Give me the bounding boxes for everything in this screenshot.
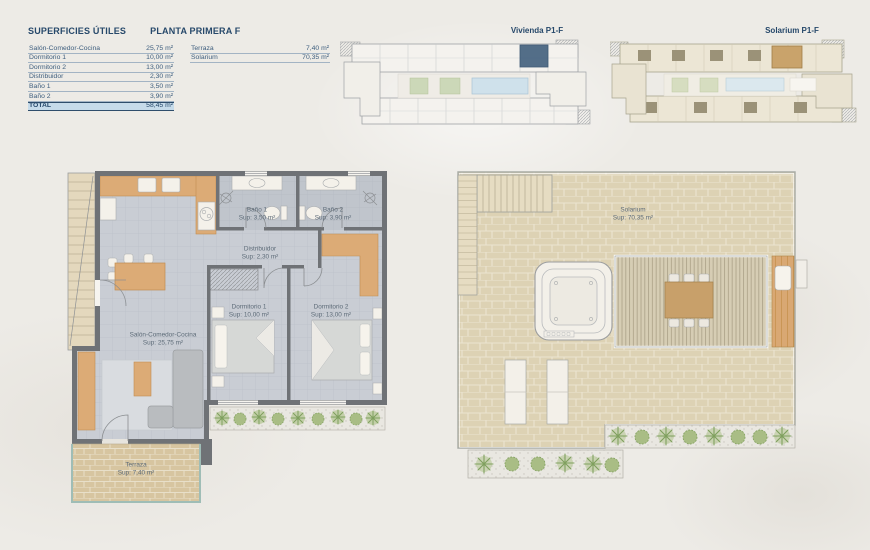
pool — [472, 78, 528, 94]
pool — [726, 78, 784, 91]
deck-pad — [790, 78, 816, 91]
building-bottom-bar — [630, 96, 842, 122]
vanity — [232, 176, 282, 190]
wood-deck — [772, 256, 794, 347]
roof-block — [638, 50, 651, 61]
wardrobe-dormitorio1 — [210, 269, 258, 290]
row-label: Dormitorio 1 — [29, 54, 66, 61]
roof-block — [694, 102, 707, 113]
row-value: 10,00 m² — [146, 54, 173, 61]
garden-patch — [700, 78, 718, 92]
table-row: Baño 1 3,50 m² — [28, 82, 174, 92]
planter-right — [605, 425, 795, 448]
row-label: Salón-Comedor-Cocina — [29, 45, 100, 52]
total-value: 58,45 m² — [146, 102, 173, 109]
shower-tray — [775, 266, 791, 290]
nightstand — [212, 307, 224, 318]
chair — [669, 274, 679, 282]
row-label: Distribuidor — [29, 73, 63, 80]
coffee-table — [134, 362, 151, 396]
pillow — [360, 324, 370, 347]
row-label: Dormitorio 2 — [29, 64, 66, 71]
sofa — [173, 350, 203, 428]
fridge — [100, 198, 116, 220]
nightstand — [212, 376, 224, 387]
header: SUPERFICIES ÚTILES PLANTA PRIMERA F — [28, 26, 241, 36]
table-row-total: TOTAL 58,45 m² — [28, 102, 174, 112]
chair — [684, 274, 694, 282]
chair — [684, 319, 694, 327]
garden-patch — [410, 78, 428, 94]
table-row: Baño 2 3,90 m² — [28, 92, 174, 102]
keyplan-solarium-label: Solarium P1-F — [732, 26, 852, 35]
chair — [699, 319, 709, 327]
vivienda-floor-plan — [60, 168, 445, 513]
keyplan-solarium-site-plan — [610, 36, 862, 128]
chair — [699, 274, 709, 282]
page-subtitle: PLANTA PRIMERA F — [150, 26, 240, 36]
ac-unit — [796, 260, 807, 288]
row-label: Baño 2 — [29, 93, 51, 100]
pillow — [215, 325, 227, 368]
row-value: 2,30 m² — [150, 73, 173, 80]
row-value: 70,35 m² — [302, 54, 329, 61]
outdoor-dining-table — [665, 274, 713, 327]
terrace — [72, 444, 200, 502]
building-left-wing — [612, 64, 646, 114]
row-value: 3,90 m² — [150, 93, 173, 100]
nightstand — [373, 383, 382, 394]
building-left-wing — [344, 62, 380, 116]
table-row: Solarium 70,35 m² — [190, 54, 330, 64]
row-label: Terraza — [191, 45, 214, 52]
highlighted-unit-vivienda — [520, 45, 548, 67]
table-row: Distribuidor 2,30 m² — [28, 73, 174, 83]
row-value: 13,00 m² — [146, 64, 173, 71]
keyplan-vivienda-label: Vivienda P1-F — [477, 26, 597, 35]
planter-strip — [210, 407, 385, 430]
jacuzzi — [535, 262, 612, 340]
toilet — [299, 206, 322, 220]
highlighted-unit-solarium — [772, 46, 802, 68]
row-value: 25,75 m² — [146, 45, 173, 52]
solarium-floor-plan — [450, 168, 810, 488]
vanity — [306, 176, 356, 190]
building-bottom-bar — [362, 98, 578, 124]
exterior-surfaces-table: Terraza 7,40 m² Solarium 70,35 m² — [190, 44, 330, 63]
building-top-bar — [620, 44, 842, 72]
table-row: Salón-Comedor-Cocina 25,75 m² — [28, 44, 174, 54]
tv-cabinet — [78, 352, 95, 430]
table-row: Dormitorio 1 10,00 m² — [28, 54, 174, 64]
total-label: TOTAL — [29, 102, 51, 109]
courtyard — [664, 74, 816, 96]
keyplan-vivienda-site-plan — [340, 36, 602, 128]
roof-block — [710, 50, 723, 61]
chair — [144, 254, 153, 263]
roof-block — [748, 50, 761, 61]
kitchen-sink — [138, 178, 156, 192]
roof-block — [794, 102, 807, 113]
row-label: Solarium — [191, 54, 218, 61]
chair — [669, 319, 679, 327]
surfaces-table: Salón-Comedor-Cocina 25,75 m² Dormitorio… — [28, 44, 174, 111]
page-title: SUPERFICIES ÚTILES — [28, 26, 126, 36]
row-value: 3,50 m² — [150, 83, 173, 90]
exterior-staircase — [68, 173, 95, 350]
chair — [124, 254, 133, 263]
sofa-chaise — [148, 406, 173, 428]
toilet — [264, 206, 287, 220]
courtyard — [398, 74, 530, 98]
kitchen-hob — [162, 178, 180, 192]
roof-block — [672, 50, 685, 61]
planter-left — [468, 450, 623, 478]
garden-patch — [440, 78, 460, 94]
row-label: Baño 1 — [29, 83, 51, 90]
table-row: Terraza 7,40 m² — [190, 44, 330, 54]
table-row: Dormitorio 2 13,00 m² — [28, 63, 174, 73]
jacuzzi-vent — [544, 331, 574, 337]
nightstand — [373, 308, 382, 319]
garden-patch — [672, 78, 688, 92]
roof-block — [744, 102, 757, 113]
row-value: 7,40 m² — [306, 45, 329, 52]
pillow — [360, 352, 370, 375]
